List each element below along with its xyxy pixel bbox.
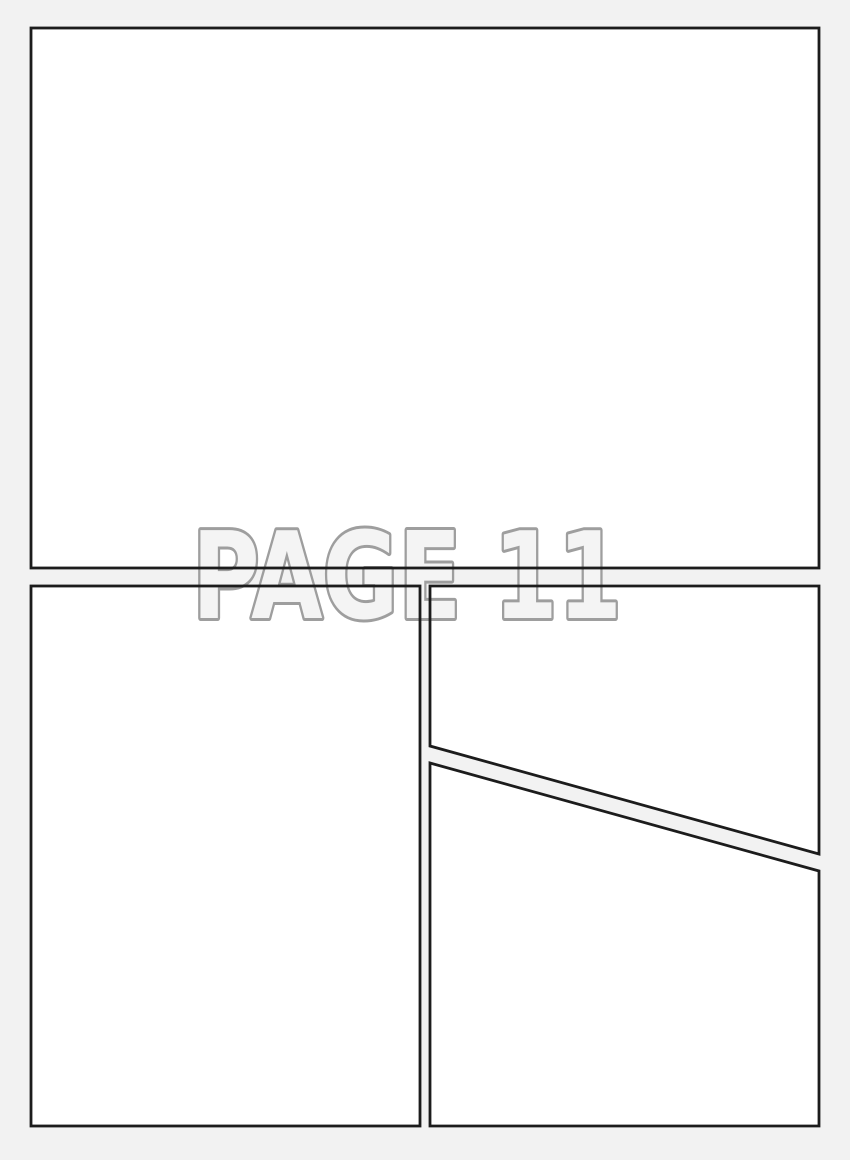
comic-page-sheet: PAGE 11: [0, 0, 850, 1160]
comic-page-template: PAGE 11: [0, 0, 850, 1160]
panel-bottom-left: [31, 586, 420, 1126]
panel-top: [31, 28, 819, 568]
page-label: PAGE 11: [192, 508, 622, 647]
